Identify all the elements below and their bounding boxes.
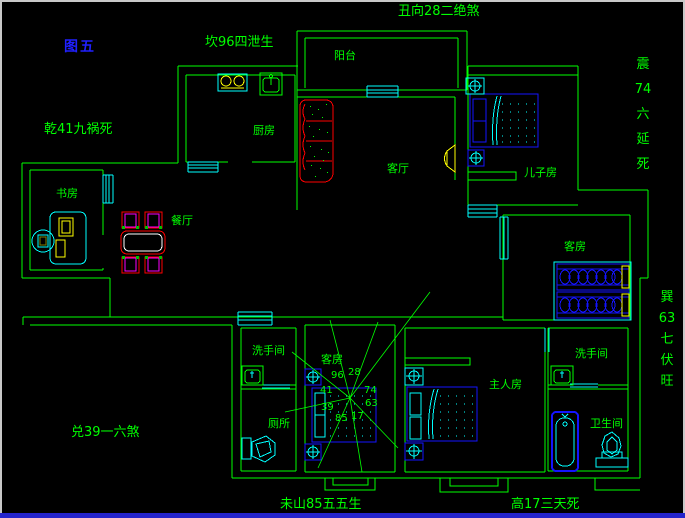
room-label-balcony: 阳台: [334, 50, 356, 62]
son-bed: [470, 94, 538, 147]
son-room-window: [468, 205, 497, 217]
compass-number-17: 17: [351, 412, 364, 422]
room-label-dining: 餐厅: [171, 215, 193, 227]
compass-number-96: 96: [331, 371, 344, 381]
compass-room-nightstand-bottom: [305, 444, 321, 460]
compass-number-85: 85: [335, 414, 348, 424]
sink-center: [242, 366, 263, 385]
sink-right: [551, 366, 573, 385]
balcony-window: [367, 86, 398, 97]
room-label-bathroom: 卫生间: [590, 418, 623, 430]
room-label-washroom-center: 洗手间: [252, 345, 285, 357]
compass-rays: [285, 292, 430, 472]
room-label-son-bedroom: 儿子房: [524, 167, 557, 179]
compass-number-41: 41: [320, 386, 333, 396]
son-nightstand-bottom: [468, 150, 484, 166]
room-label-guest-bedroom-2: 客房: [321, 354, 343, 366]
study-desk: [50, 212, 86, 264]
room-label-kitchen: 厨房: [253, 125, 275, 137]
room-label-toilet-room: 厕所: [268, 418, 290, 430]
door-threshold-right: [570, 384, 598, 387]
master-bed: [407, 387, 477, 441]
dining-table: [121, 231, 165, 254]
window-border-top: [0, 0, 685, 2]
guest-room-window: [500, 217, 508, 259]
status-strip: [0, 513, 685, 518]
bathtub: [552, 412, 578, 471]
windows: [103, 86, 598, 388]
son-nightstand-top: [466, 78, 484, 94]
window-border-left: [0, 0, 2, 518]
twin-beds: [554, 262, 631, 320]
stove: [218, 74, 247, 91]
annotation-north: 坎96四泄生: [205, 36, 274, 50]
room-label-washroom-right: 洗手间: [575, 348, 608, 360]
floor-plan-canvas: [0, 0, 685, 518]
annotation-northeast: 丑向28二绝煞: [398, 5, 480, 19]
cad-floorplan-window: 图五 坎96四泄生 丑向28二绝煞 乾41九祸死 震 74 六 延 死 巽 63…: [0, 0, 685, 518]
annotation-southeast: 巽 63 七 伏 旺: [658, 287, 676, 392]
compass-number-63: 63: [365, 399, 378, 409]
room-label-living: 客厅: [387, 163, 409, 175]
master-shelf: [405, 358, 470, 365]
compass-number-28: 28: [348, 368, 361, 378]
master-nightstand-top: [405, 368, 423, 385]
dining-chairs: [122, 212, 162, 273]
study-chair: [32, 230, 54, 252]
toilet-center: [242, 436, 275, 462]
kitchen-sink: [260, 73, 282, 95]
annotation-east: 震 74 六 延 死: [634, 52, 652, 177]
room-label-guest-bedroom: 客房: [564, 241, 586, 253]
room-label-master-bedroom: 主人房: [489, 379, 522, 391]
toilet-right: [596, 432, 628, 467]
annotation-southwest: 未山85五五生: [280, 498, 362, 512]
annotation-west: 兑39一六煞: [71, 426, 140, 440]
annotation-northwest: 乾41九祸死: [44, 123, 113, 137]
compass-number-74: 74: [364, 386, 377, 396]
room-label-study: 书房: [56, 188, 78, 200]
washroom-window: [238, 312, 272, 325]
master-nightstand-bottom: [405, 443, 423, 460]
tv: [445, 145, 456, 172]
sofa: [300, 100, 333, 182]
compass-number-39: 39: [321, 403, 334, 413]
annotation-south: 高17三天死: [511, 498, 580, 512]
son-shelf: [468, 172, 516, 180]
study-window: [103, 175, 113, 203]
kitchen-window: [188, 162, 218, 172]
compass-room-nightstand-top: [305, 369, 321, 385]
door-threshold-left: [262, 385, 290, 388]
figure-label: 图五: [64, 36, 96, 56]
